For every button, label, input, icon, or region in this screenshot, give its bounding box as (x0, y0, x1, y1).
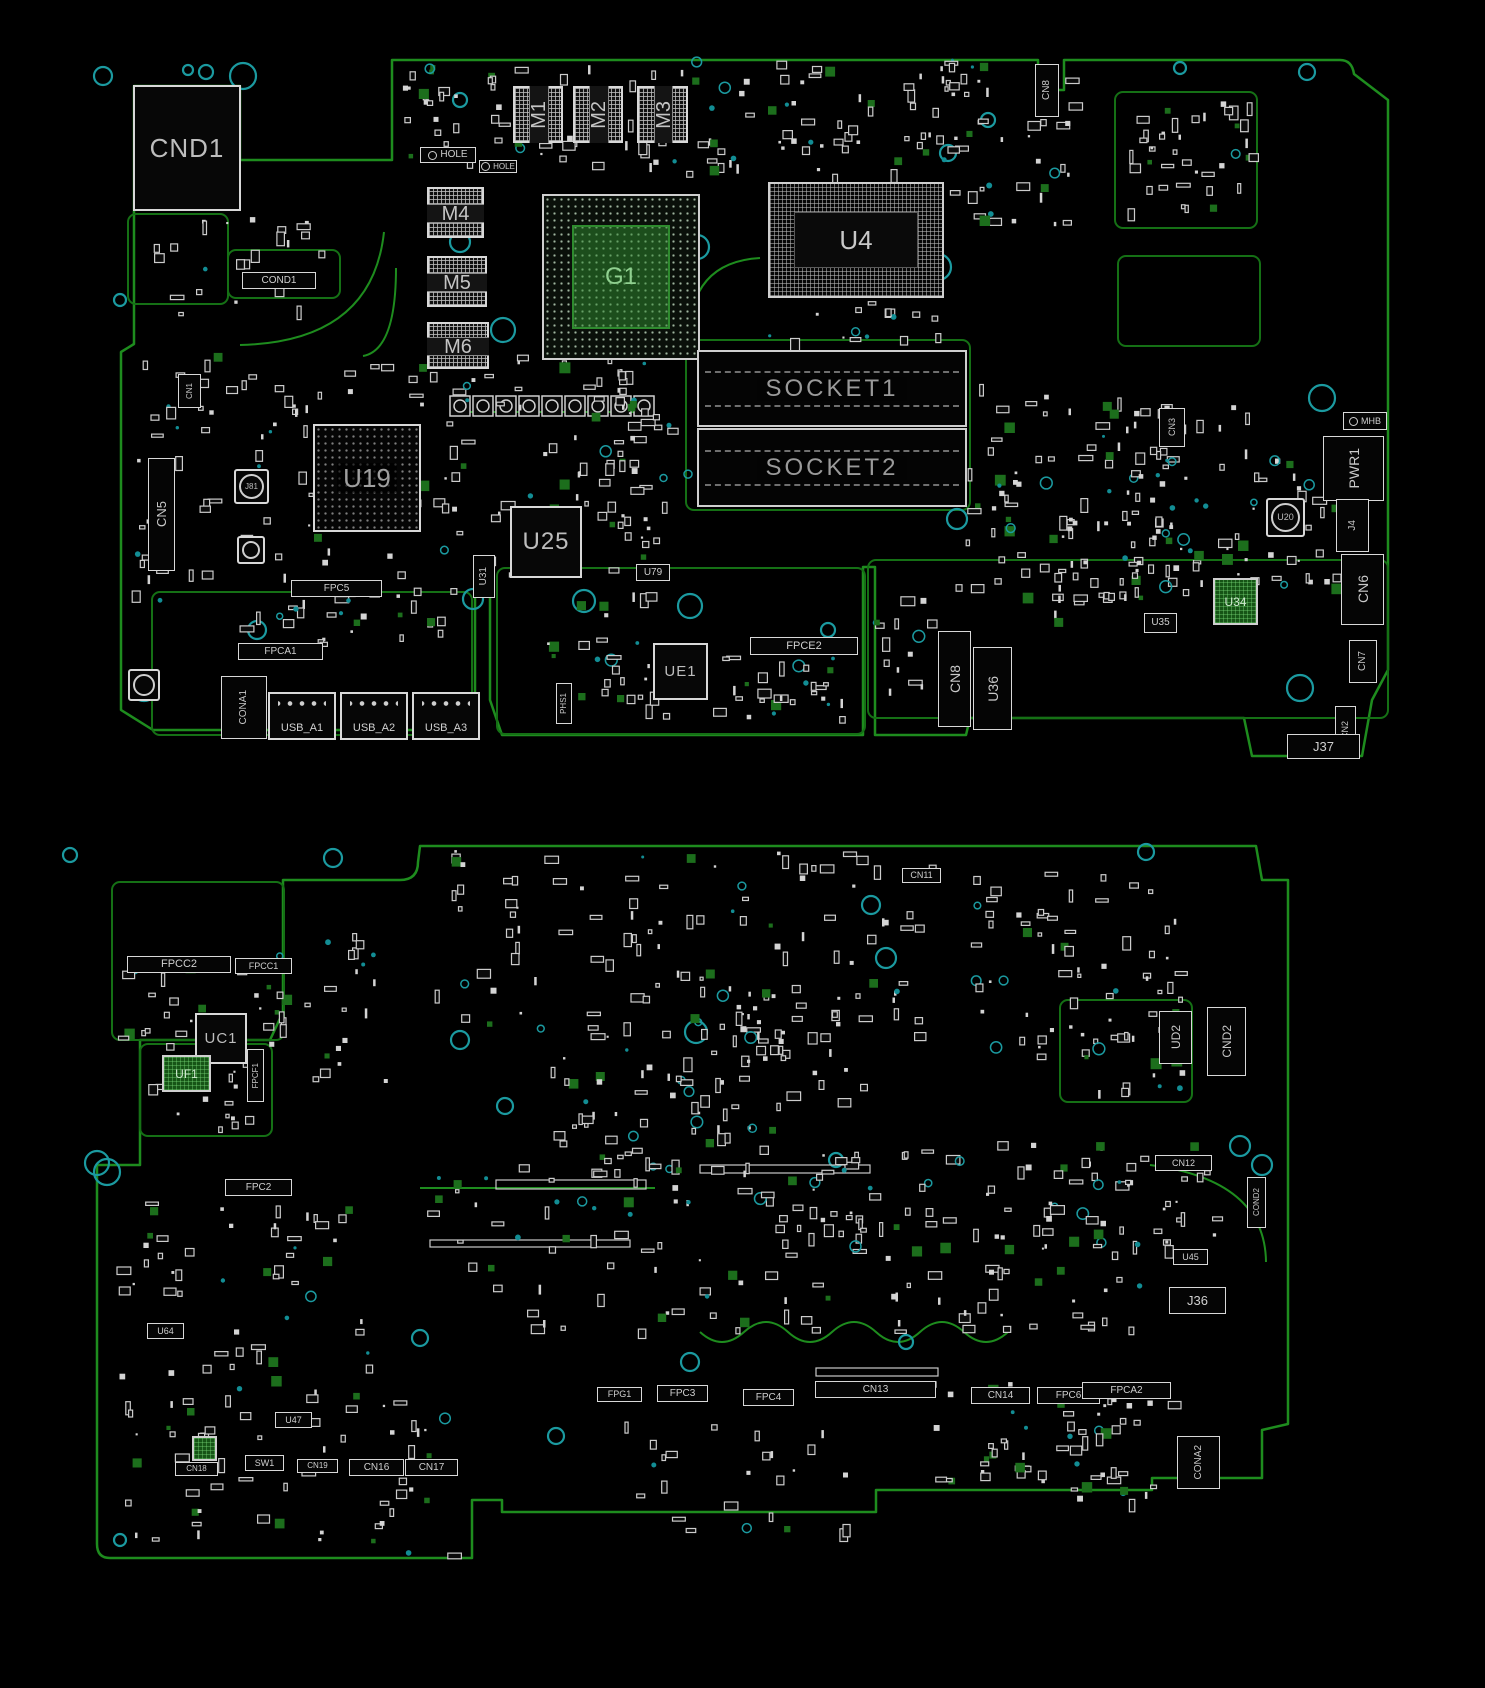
component-chip-green (192, 1436, 217, 1461)
component-label: CN16 (364, 1463, 390, 1473)
component-label: J36 (1187, 1294, 1208, 1307)
component-j36: J36 (1169, 1287, 1226, 1314)
component-cn13: CN13 (815, 1381, 936, 1398)
component-cn11: CN11 (902, 868, 941, 883)
pcb-boardview-canvas: CND1COND1HOLEHOLEM1M2M3M4M5M6G1U4SOCKET1… (0, 0, 1485, 1688)
component-label: CN11 (910, 871, 932, 880)
component-fpca2: FPCA2 (1082, 1382, 1171, 1399)
component-cn18: CN18 (175, 1462, 218, 1476)
component-cn14: CN14 (971, 1387, 1030, 1404)
component-label: CN19 (307, 1462, 327, 1470)
component-label: FPCA2 (1110, 1386, 1142, 1396)
component-label: CN17 (419, 1463, 445, 1473)
component-cn19: CN19 (297, 1459, 338, 1473)
component-label: FPC2 (246, 1183, 272, 1193)
component-cnd2: CND2 (1207, 1007, 1246, 1076)
component-label: CN12 (1172, 1159, 1195, 1168)
component-label: COND2 (1253, 1188, 1261, 1216)
component-cona2: CONA2 (1177, 1436, 1220, 1489)
component-label: UC1 (204, 1031, 237, 1046)
component-label: CN13 (863, 1385, 889, 1395)
component-fpcc2: FPCC2 (127, 956, 231, 973)
component-label: FPCC1 (249, 962, 279, 971)
board-bottom-view: FPCC2FPCC1UC1CN11UF1FPCF1FPC2UD2CND2CN12… (0, 0, 1485, 1688)
component-label: UF1 (175, 1068, 198, 1080)
component-fpc4: FPC4 (743, 1389, 794, 1406)
component-u45: U45 (1173, 1249, 1208, 1265)
component-uf1: UF1 (162, 1055, 211, 1092)
component-u47: U47 (275, 1412, 312, 1428)
component-label: SW1 (255, 1459, 275, 1468)
component-label: FPC4 (756, 1393, 782, 1403)
component-label: SOCKET2 (757, 456, 906, 480)
component-label: FPCC2 (161, 959, 197, 970)
component-cn12: CN12 (1155, 1155, 1212, 1171)
component-label: CN18 (186, 1465, 206, 1473)
component-label: UD2 (1170, 1025, 1182, 1049)
component-label: FPG1 (608, 1390, 632, 1399)
component-label: U64 (157, 1327, 174, 1336)
component-label: FPC6 (1056, 1391, 1082, 1401)
component-cond2: COND2 (1247, 1177, 1266, 1228)
component-cn16: CN16 (349, 1459, 404, 1476)
component-label: CONA2 (1194, 1445, 1204, 1479)
component-label: CN14 (988, 1391, 1014, 1401)
component-label: U47 (285, 1416, 302, 1425)
component-fpcf1: FPCF1 (247, 1049, 264, 1102)
component-label: U20 (1277, 513, 1294, 522)
component-label: SOCKET1 (757, 377, 906, 401)
component-label: G1 (605, 265, 637, 289)
component-sw1: SW1 (245, 1455, 284, 1471)
component-label: FPC3 (670, 1389, 696, 1399)
component-label: J81 (245, 483, 258, 491)
component-cn17: CN17 (405, 1459, 458, 1476)
component-label: U45 (1182, 1253, 1199, 1262)
component-label: CND2 (1221, 1025, 1233, 1058)
component-ud2: UD2 (1159, 1011, 1192, 1064)
component-u64: U64 (147, 1323, 184, 1339)
component-fpcc1: FPCC1 (235, 958, 292, 974)
component-fpg1: FPG1 (597, 1387, 642, 1402)
component-fpc3: FPC3 (657, 1385, 708, 1402)
component-label: FPCF1 (252, 1063, 260, 1088)
component-fpc2: FPC2 (225, 1179, 292, 1196)
